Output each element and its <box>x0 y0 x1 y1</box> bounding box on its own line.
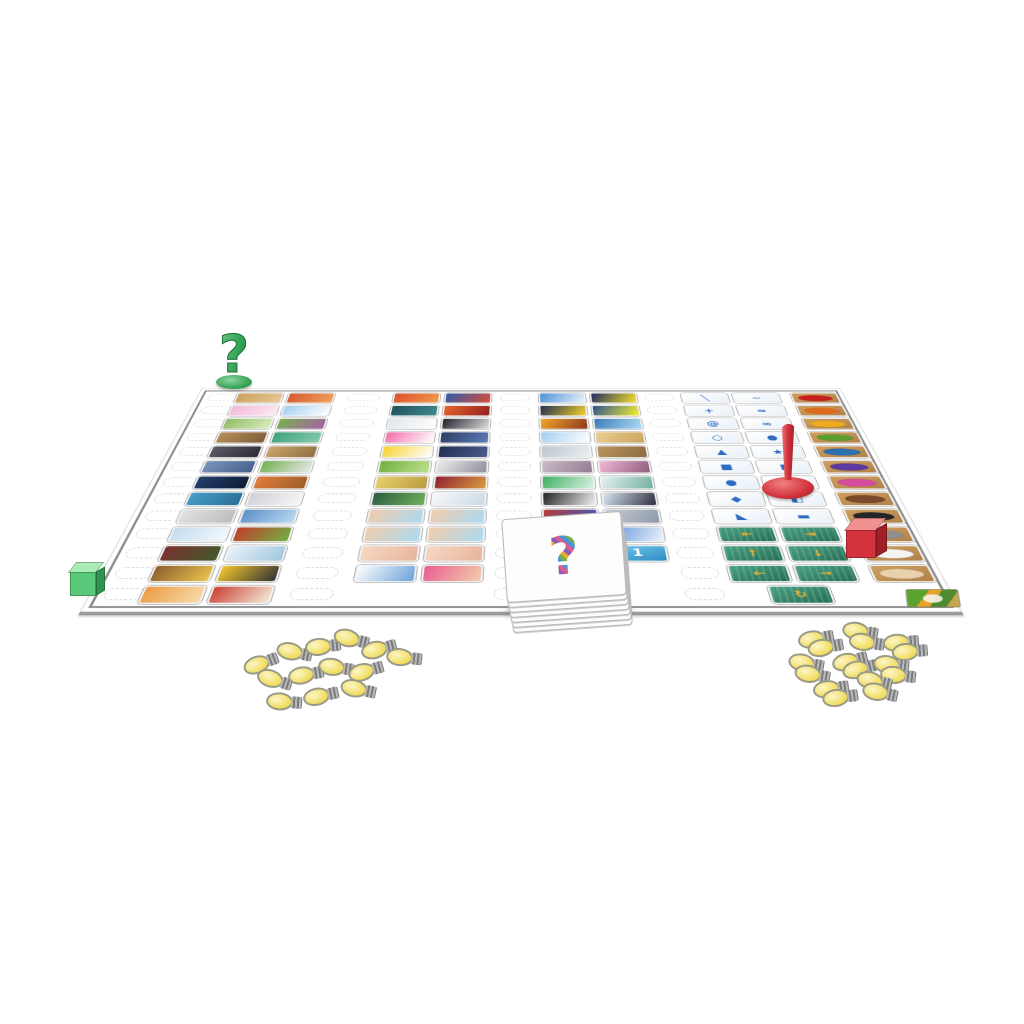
empty-cube-slot <box>335 433 372 441</box>
picture-tile <box>426 526 485 542</box>
picture-tile <box>251 476 310 490</box>
direction-tile: ↑ <box>721 545 786 562</box>
picture-tile <box>386 418 437 429</box>
picture-tile <box>362 526 423 542</box>
direction-tile: ⇥ <box>779 526 843 542</box>
picture-tile <box>444 393 492 404</box>
picture-tile <box>539 418 589 429</box>
picture-tile <box>437 446 489 458</box>
empty-cube-slot <box>306 529 348 539</box>
picture-tile <box>383 432 435 444</box>
picture-tile <box>591 405 641 416</box>
symbol-tile: + <box>683 405 734 416</box>
empty-cube-slot <box>661 478 697 487</box>
picture-tile <box>269 432 323 444</box>
picture-tile <box>431 492 487 506</box>
exclamation-mark-icon <box>781 424 796 480</box>
empty-cube-slot <box>288 588 334 600</box>
direction-tile: → <box>792 565 860 583</box>
picture-tile <box>377 460 432 473</box>
empty-cube-slot <box>331 447 368 455</box>
color-tile <box>820 460 879 473</box>
picture-tile <box>539 405 588 416</box>
picture-tile <box>439 432 490 444</box>
picture-tile <box>192 476 252 490</box>
color-tile <box>827 476 888 490</box>
empty-cube-slot <box>664 494 701 503</box>
picture-tile <box>596 446 649 458</box>
question-pawn: ? <box>204 332 264 389</box>
picture-tile <box>263 446 319 458</box>
picture-tile <box>199 460 257 473</box>
red-cube <box>846 518 898 564</box>
bulb-glass-icon <box>265 691 293 711</box>
picture-tile <box>601 492 658 506</box>
picture-tile <box>280 405 332 416</box>
picture-tile <box>245 492 305 506</box>
green-cube <box>70 562 116 602</box>
symbol-tile: ◣ <box>711 509 772 524</box>
bulb-screw-icon <box>371 660 385 675</box>
empty-cube-slot <box>499 420 530 427</box>
picture-tile <box>541 476 596 490</box>
color-blob <box>803 408 841 414</box>
empty-cube-slot <box>499 433 531 441</box>
picture-tile <box>184 492 245 506</box>
empty-cube-slot <box>497 494 532 503</box>
empty-cube-slot <box>684 588 726 600</box>
picture-tile <box>590 393 639 404</box>
picture-tile <box>227 405 280 416</box>
picture-tile <box>541 460 594 473</box>
direction-tile: ← <box>726 565 792 583</box>
picture-tile <box>233 393 285 404</box>
picture-tile <box>223 545 288 562</box>
picture-tile <box>358 545 420 562</box>
publisher-logo <box>905 589 961 607</box>
symbol-tile: ■ <box>698 460 755 473</box>
picture-tile <box>428 509 486 524</box>
picture-tile <box>220 418 274 429</box>
picture-tile <box>175 509 238 524</box>
bulb-screw-icon <box>410 652 422 665</box>
empty-cube-slot <box>500 394 530 401</box>
picture-tile <box>353 565 417 583</box>
symbol-tile: ~ <box>731 393 782 404</box>
picture-tile <box>539 393 587 404</box>
picture-tile <box>540 446 592 458</box>
empty-cube-slot <box>498 462 531 471</box>
picture-tile <box>380 446 434 458</box>
color-tile <box>868 565 938 583</box>
empty-cube-slot <box>655 447 689 455</box>
scene: 01╲+@○▲■●◆◣⇤↑←~≈∞●★▮◔◧▬⇥↓→↻ ? ? <box>0 0 1024 1024</box>
color-tile <box>834 492 896 506</box>
empty-cube-slot <box>346 394 380 401</box>
symbol-tile: ● <box>702 476 760 490</box>
bulb-screw-icon <box>291 696 303 709</box>
question-mark-icon: ? <box>204 332 264 379</box>
color-blob <box>797 395 834 401</box>
picture-tile <box>421 565 484 583</box>
empty-cube-slot <box>680 567 721 579</box>
empty-cube-slot <box>326 462 364 471</box>
light-bulb-token <box>811 673 858 705</box>
top-card: ? <box>501 511 627 603</box>
bulb-screw-icon <box>904 670 916 683</box>
picture-tile <box>440 418 490 429</box>
rotate-tile: ↻ <box>767 585 836 604</box>
picture-tile <box>157 545 224 562</box>
color-tile <box>813 446 871 458</box>
symbol-tile: ▬ <box>772 509 834 524</box>
empty-cube-slot <box>500 407 530 414</box>
picture-tile <box>540 432 591 444</box>
picture-tile <box>275 418 328 429</box>
picture-tile <box>389 405 439 416</box>
empty-cube-slot <box>295 567 340 579</box>
picture-tile <box>238 509 300 524</box>
color-blob <box>828 463 870 470</box>
symbol-tile: ▲ <box>694 446 749 458</box>
empty-cube-slot <box>649 420 681 427</box>
empty-cube-slot <box>646 407 678 414</box>
color-tile <box>795 405 849 416</box>
picture-tile <box>442 405 491 416</box>
picture-tile <box>593 418 644 429</box>
empty-cube-slot <box>339 420 375 427</box>
symbol-tile: ≈ <box>735 405 787 416</box>
picture-tile <box>423 545 484 562</box>
empty-cube-slot <box>676 547 716 558</box>
color-blob <box>843 495 887 503</box>
picture-tile <box>541 492 597 506</box>
picture-tile <box>373 476 429 490</box>
color-blob <box>877 569 926 579</box>
picture-tile <box>214 432 269 444</box>
picture-tile <box>392 393 441 404</box>
picture-tile <box>433 476 488 490</box>
empty-cube-slot <box>668 511 706 521</box>
empty-cube-slot <box>652 433 685 441</box>
color-blob <box>815 434 855 441</box>
picture-tile <box>597 460 652 473</box>
direction-tile: ↓ <box>785 545 851 562</box>
empty-cube-slot <box>322 478 361 487</box>
picture-tile <box>285 393 336 404</box>
empty-cube-slot <box>658 462 693 471</box>
color-blob <box>822 448 863 455</box>
logo-mark-icon <box>922 594 944 602</box>
empty-cube-slot <box>343 407 378 414</box>
picture-tile <box>230 526 293 542</box>
picture-tile <box>257 460 314 473</box>
picture-tile <box>435 460 489 473</box>
question-mark-card-icon: ? <box>547 526 581 588</box>
direction-tile: ⇤ <box>716 526 779 542</box>
empty-cube-slot <box>644 394 675 401</box>
bulb-screw-icon <box>364 685 377 699</box>
exclamation-pawn <box>758 424 818 499</box>
symbol-tile: ╲ <box>680 393 730 404</box>
bulb-screw-icon <box>886 688 899 702</box>
symbol-tile: @ <box>687 418 740 429</box>
empty-cube-slot <box>312 511 353 521</box>
card-stack: ? <box>498 515 648 627</box>
picture-tile <box>370 492 428 506</box>
pawn-base <box>762 477 814 499</box>
picture-tile <box>207 446 264 458</box>
color-blob <box>836 479 879 487</box>
picture-tile <box>599 476 655 490</box>
picture-tile <box>594 432 646 444</box>
empty-cube-slot <box>317 494 357 503</box>
picture-tile <box>137 585 208 604</box>
color-tile <box>789 393 841 404</box>
picture-tile <box>166 526 231 542</box>
empty-cube-slot <box>672 529 711 539</box>
picture-tile <box>206 585 275 604</box>
picture-tile <box>366 509 425 524</box>
empty-cube-slot <box>498 447 530 455</box>
picture-tile <box>147 565 216 583</box>
symbol-tile: ○ <box>690 432 744 444</box>
empty-cube-slot <box>301 547 345 558</box>
picture-tile <box>215 565 282 583</box>
empty-cube-slot <box>497 478 531 487</box>
